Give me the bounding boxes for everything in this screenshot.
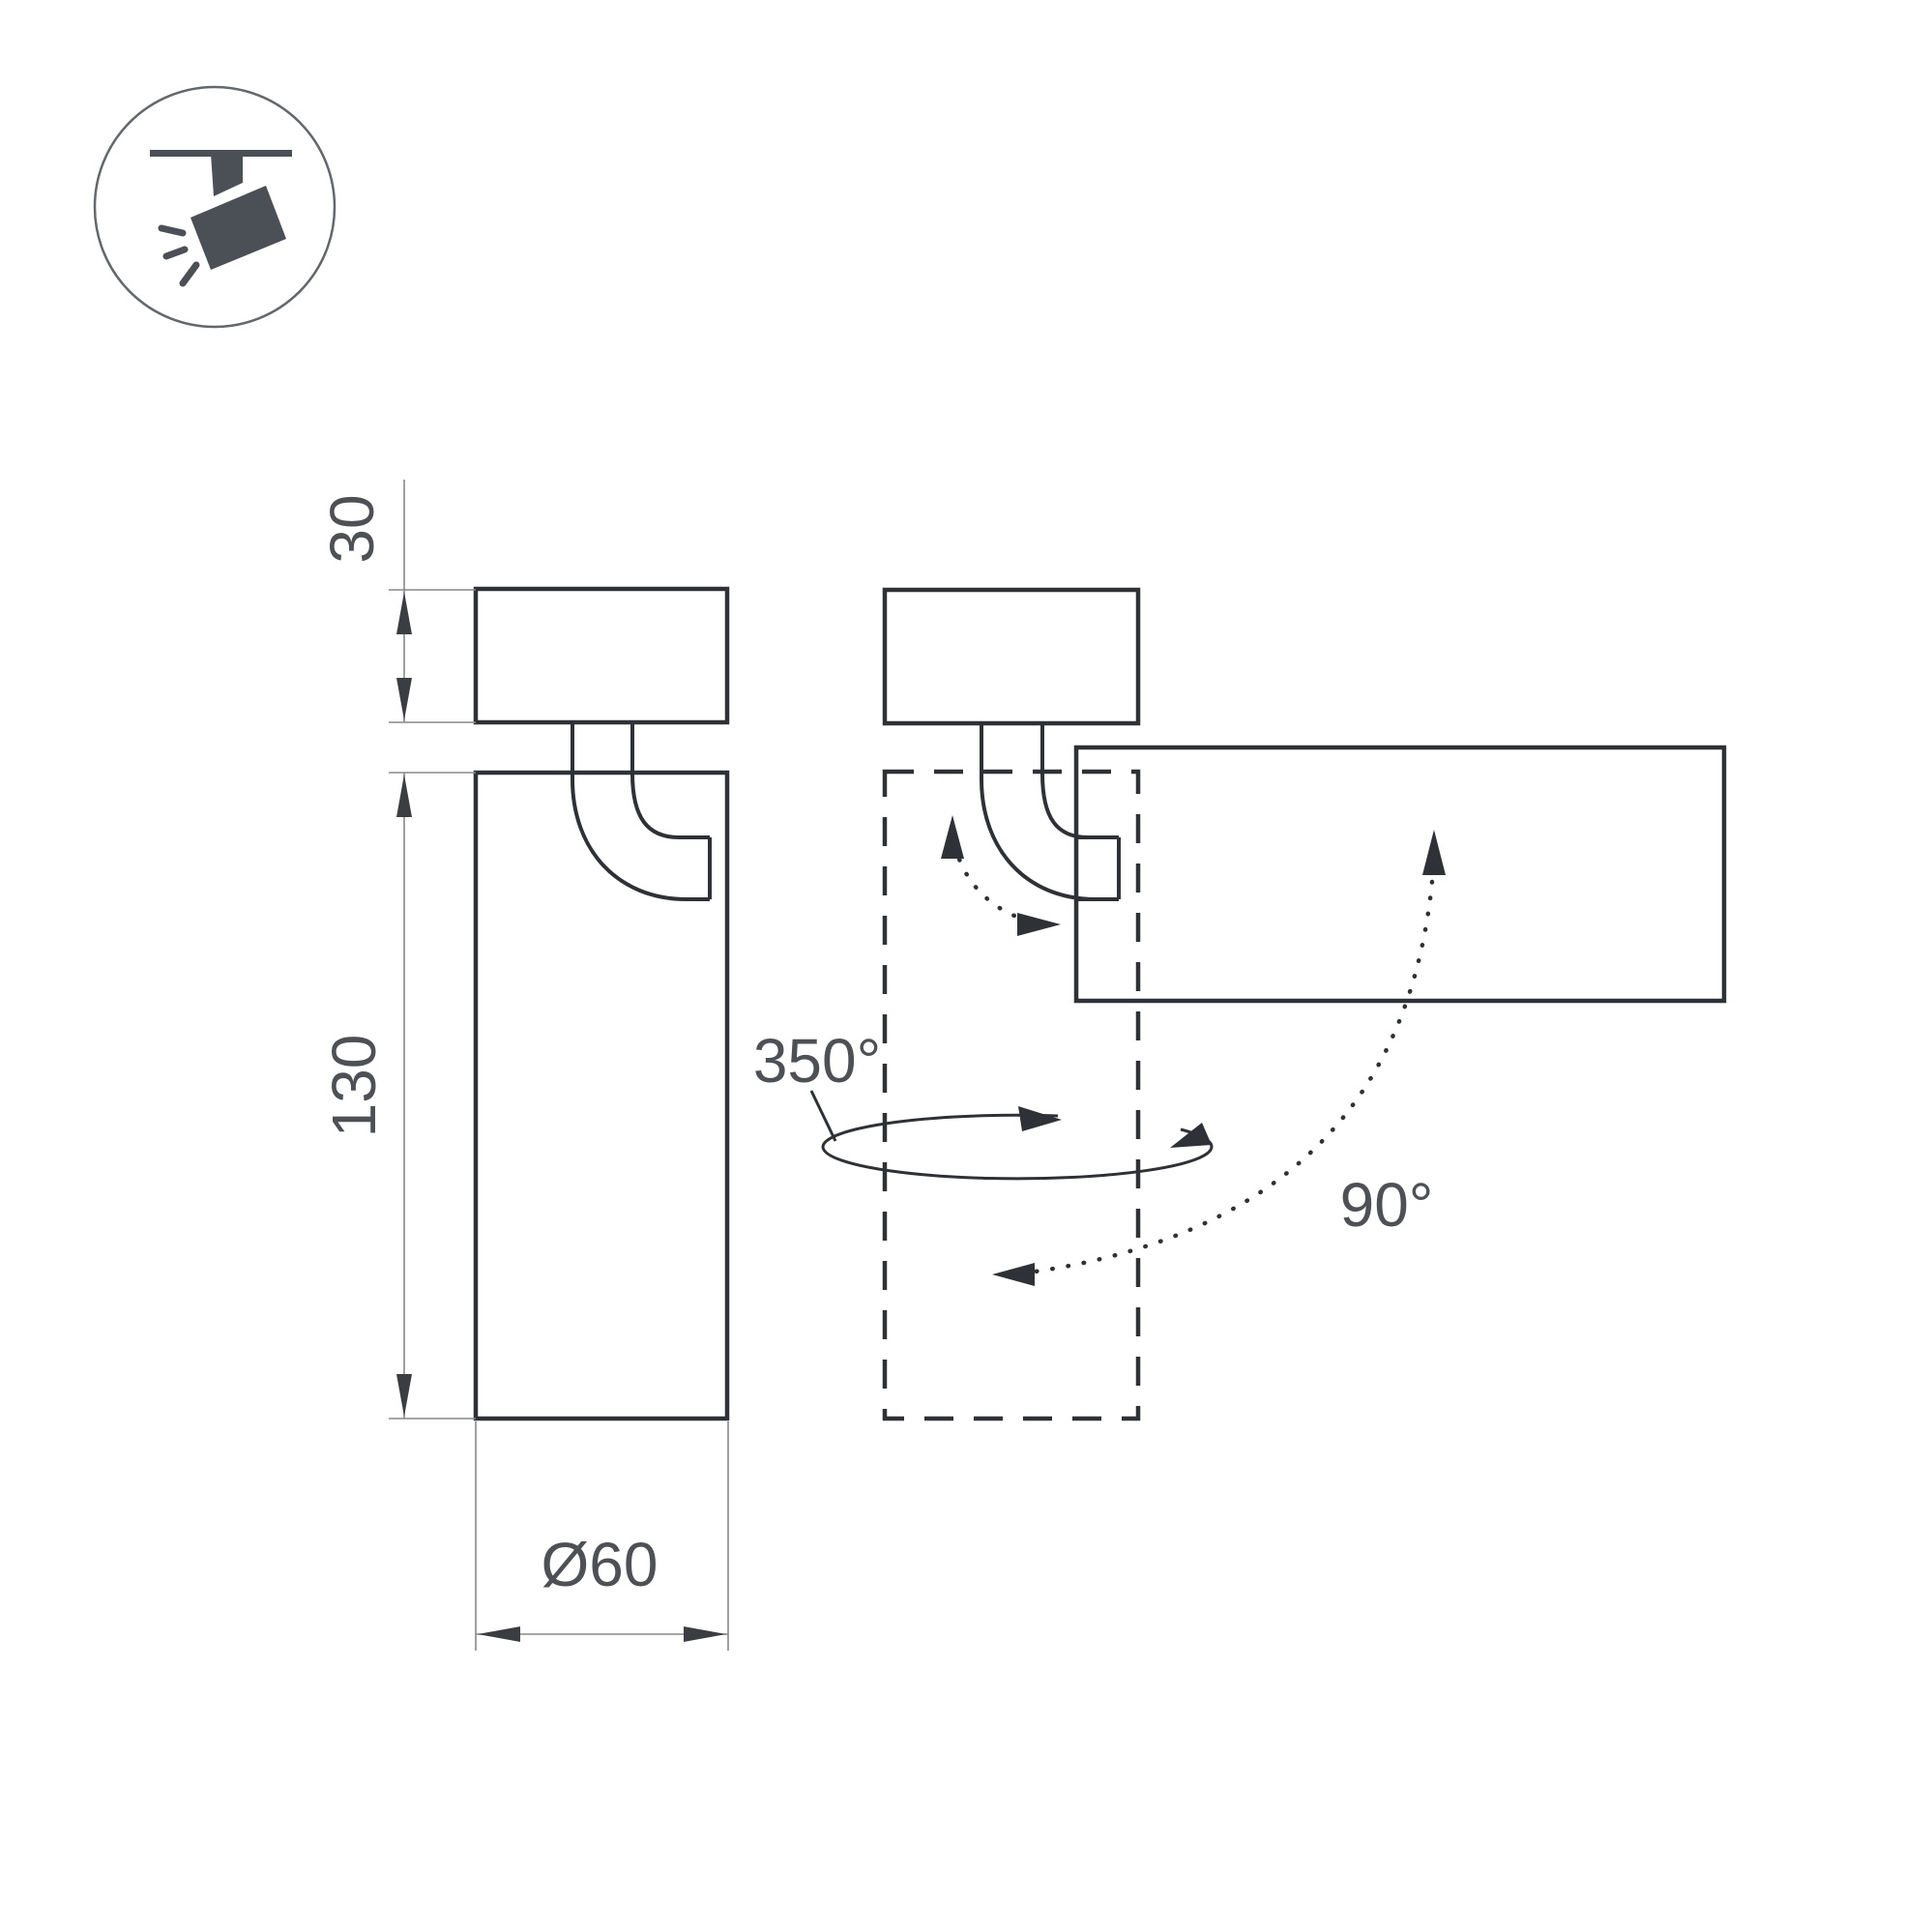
dimension-label-diameter: Ø60 bbox=[542, 1530, 659, 1599]
swivel-angle-label: 350° bbox=[753, 1026, 881, 1096]
swivel-elbow-right bbox=[981, 723, 1119, 899]
dimension-label-30: 30 bbox=[317, 494, 387, 563]
icon-circle-border bbox=[95, 87, 335, 327]
tilt-arrow-up-icon bbox=[941, 815, 964, 859]
dimension-body-height: 130 bbox=[319, 773, 476, 1419]
body-tilt-arrow-left-icon bbox=[992, 1263, 1035, 1286]
fixture-rotation-view bbox=[885, 590, 1724, 1419]
tilt-annotation: 90° bbox=[941, 815, 1446, 1286]
elbow-tilt-arc bbox=[952, 829, 1047, 923]
fixture-front-view bbox=[476, 589, 727, 1419]
swivel-arrow-right-icon bbox=[1018, 1106, 1062, 1131]
swivel-ellipse-bottom-arc bbox=[823, 1129, 1212, 1179]
mount-stem bbox=[211, 154, 243, 196]
spotlight-dimension-drawing: 30 130 Ø60 bbox=[0, 0, 1932, 1932]
dimension-label-130: 130 bbox=[319, 1035, 389, 1138]
body-tilt-arrow-up-icon bbox=[1422, 830, 1446, 875]
technical-drawing-page: 30 130 Ø60 bbox=[0, 0, 1932, 1932]
mounting-plate-right bbox=[885, 590, 1138, 723]
dimension-diameter: Ø60 bbox=[476, 1421, 728, 1651]
tilt-angle-label: 90° bbox=[1340, 1170, 1434, 1240]
body-tilted-horizontal bbox=[1076, 747, 1724, 1001]
mounting-plate bbox=[476, 589, 727, 722]
swivel-elbow bbox=[572, 722, 710, 899]
body-original-position-dashed bbox=[885, 772, 1138, 1419]
swivel-annotation: 350° bbox=[753, 1026, 1212, 1179]
spotlight-icon bbox=[95, 87, 335, 327]
lamp-head bbox=[190, 186, 286, 270]
swivel-leader-line bbox=[811, 1091, 835, 1141]
light-rays-icon bbox=[161, 228, 196, 283]
tilt-arrow-right-icon bbox=[1017, 913, 1061, 936]
dimension-mount-height: 30 bbox=[317, 480, 476, 722]
cylinder-body bbox=[476, 773, 727, 1419]
swivel-arrow-back-icon bbox=[1170, 1123, 1212, 1148]
